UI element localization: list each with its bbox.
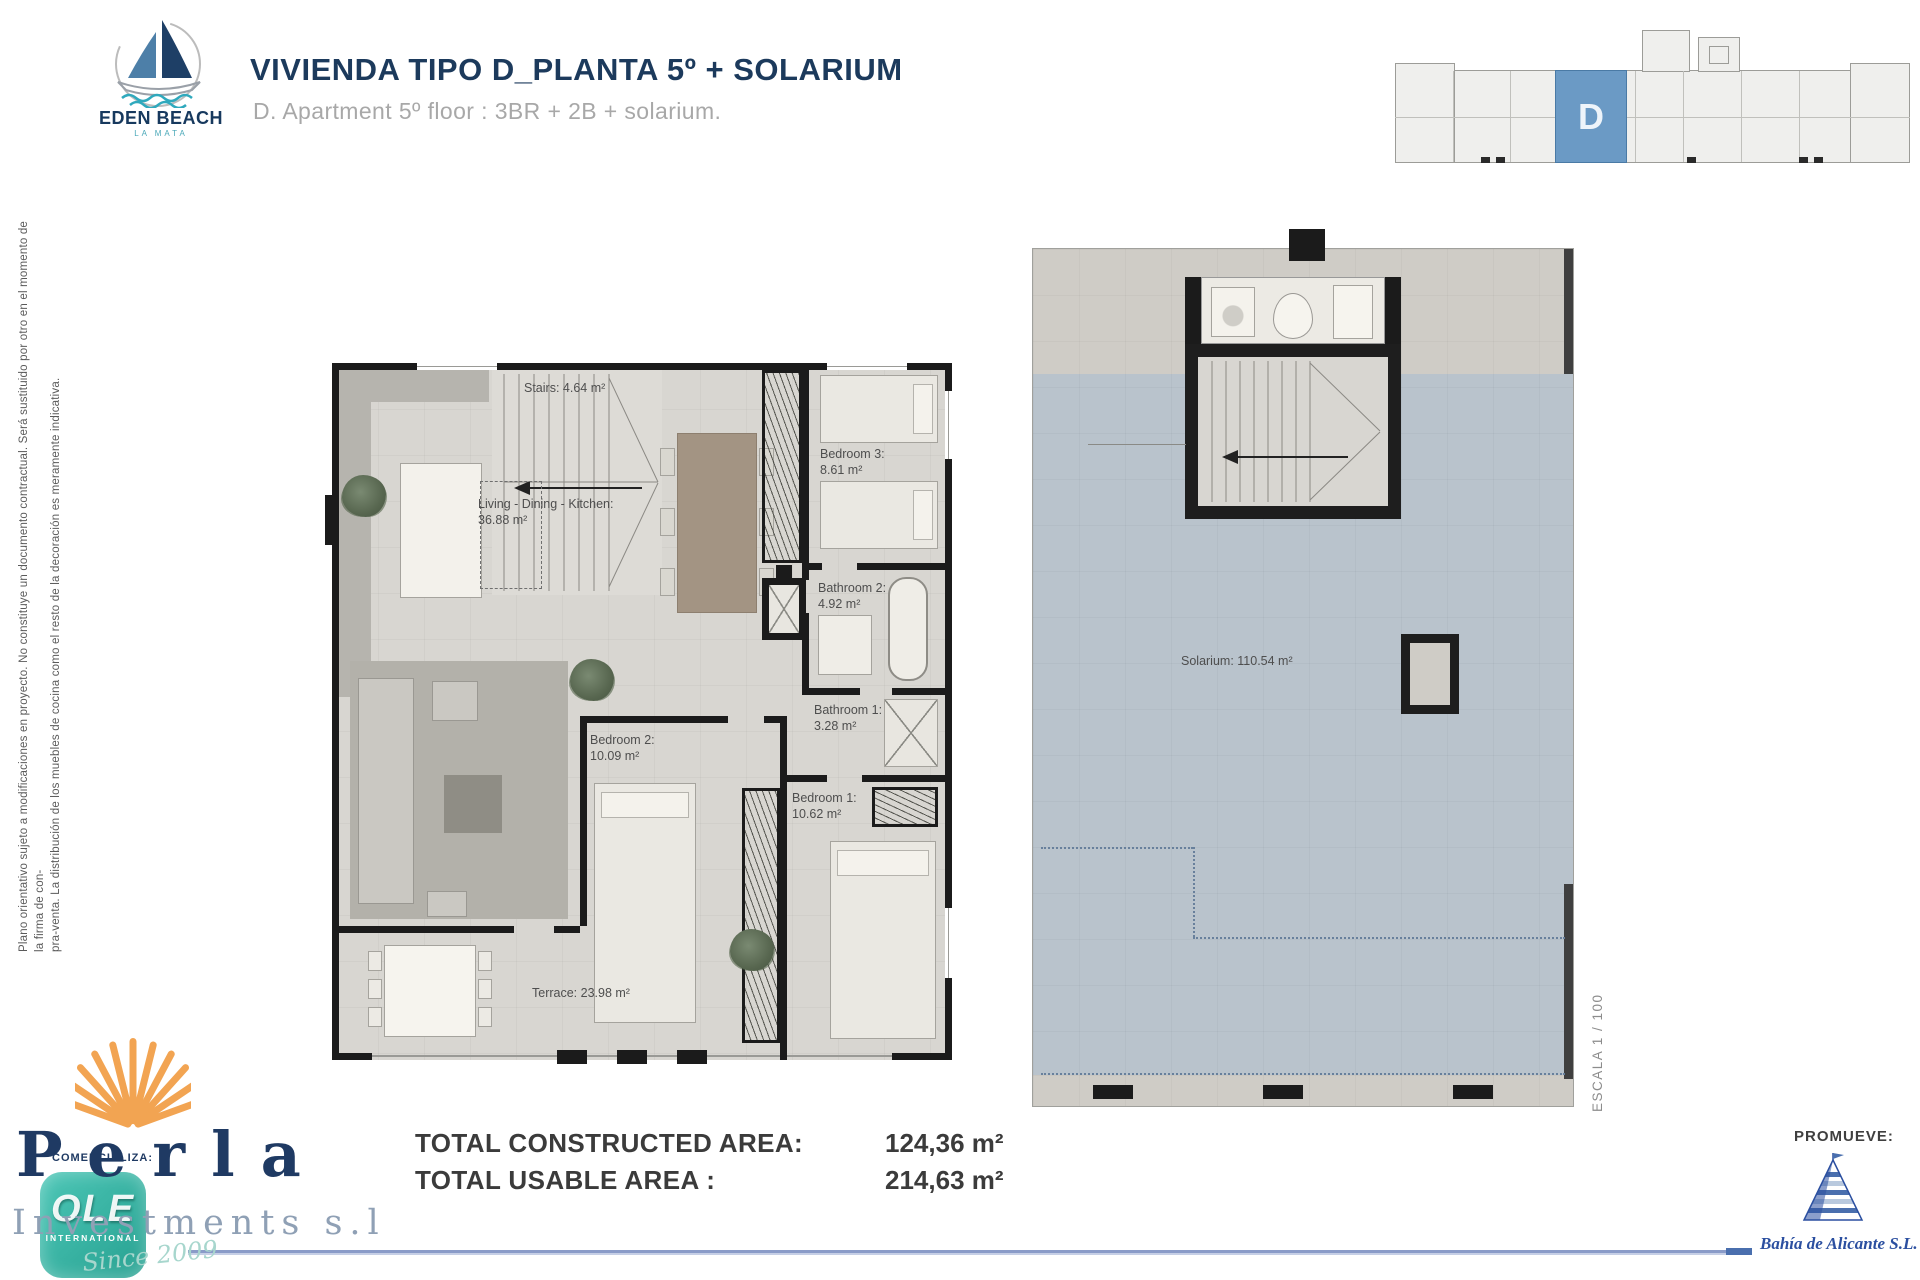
title-post: _PLANTA 5º + SOLARIUM	[515, 52, 903, 87]
side-table	[427, 891, 467, 917]
solarium-stairwell	[1185, 344, 1401, 519]
setback-dotted-line	[1041, 847, 1193, 849]
terrace-chair	[478, 951, 492, 971]
bedroom3-label: Bedroom 3: 8.61 m²	[820, 447, 885, 478]
bedroom1-label: Bedroom 1: 10.62 m²	[792, 791, 857, 822]
plant-icon	[570, 659, 614, 701]
wall-bathrooms-divider	[802, 688, 860, 695]
key-plan-right-wing	[1850, 63, 1910, 163]
bathroom1-label: Bathroom 1: 3.28 m²	[814, 703, 882, 734]
terrace-chair	[368, 979, 382, 999]
legal-disclaimer: Plano orientativo sujeto a modificacione…	[16, 212, 64, 952]
wall-bedrooms-divider	[780, 716, 787, 1060]
stairs-label: Stairs: 4.64 m²	[524, 381, 605, 397]
facade-pier	[1263, 1085, 1303, 1099]
sailboat-icon	[96, 16, 226, 108]
wall-terrace	[339, 926, 514, 933]
bedroom1-bed	[830, 841, 936, 1039]
title-unit-letter: D	[492, 52, 515, 87]
wardrobe-hatch-bedroom2	[742, 788, 780, 1043]
plant-icon	[730, 929, 774, 971]
wall-bathroom1-bottom	[787, 775, 827, 782]
total-constructed-label: TOTAL CONSTRUCTED AREA:	[415, 1128, 885, 1159]
bedroom2-label: Bedroom 2: 10.09 m²	[590, 733, 655, 764]
armchair	[432, 681, 478, 721]
plan-sheet: { "header": { "brand": { "name": "EDEN B…	[0, 0, 1920, 1280]
bedroom2-label-name: Bedroom 2:	[590, 733, 655, 749]
window-bedroom1-right	[945, 908, 952, 978]
solarium-chimney-box	[1401, 634, 1459, 714]
wall-solarium-right-top	[1564, 249, 1573, 374]
bedroom3-label-name: Bedroom 3:	[820, 447, 885, 463]
wall-bedroom2-top	[580, 716, 728, 723]
wall-left-pillar	[325, 495, 332, 545]
scale-label: ESCALA 1 / 100	[1590, 932, 1605, 1112]
window-bedroom3-right	[945, 391, 952, 459]
window-kitchen	[417, 363, 497, 370]
page-subtitle: D. Apartment 5º floor : 3BR + 2B + solar…	[253, 98, 721, 125]
kitchen-island	[400, 463, 482, 598]
coffee-table	[444, 775, 502, 833]
brand-tagline: LA MATA	[85, 129, 237, 138]
living-label: Living - Dining - Kitchen: 36.88 m²	[478, 497, 613, 528]
wall-bedroom2-left	[580, 716, 587, 926]
facade-pier	[617, 1050, 647, 1064]
wall-bathroom1-bottom	[862, 775, 952, 782]
stair-reference-line	[1088, 444, 1186, 445]
bathtub	[888, 577, 928, 681]
bathroom1-label-area: 3.28 m²	[814, 719, 882, 735]
solarium-top-pillar	[1289, 229, 1325, 261]
key-plan-stair-core	[1642, 30, 1690, 72]
wall-bathrooms-divider	[892, 688, 952, 695]
wardrobe-hatch-bedroom3	[762, 370, 802, 563]
laundry-cabinet	[1333, 285, 1373, 339]
terrace-chair	[478, 1007, 492, 1027]
dining-chair	[660, 568, 675, 596]
disclaimer-line2: pra-venta. La distribución de los mueble…	[48, 212, 64, 952]
terrace-chair	[478, 979, 492, 999]
bedroom3-label-area: 8.61 m²	[820, 463, 885, 479]
total-constructed-value: 124,36 m²	[885, 1128, 1004, 1159]
plant-icon	[342, 475, 386, 517]
wall-bedroom3-left	[802, 370, 809, 570]
stairwell-drawing	[1198, 357, 1388, 506]
dining-table	[677, 433, 757, 613]
page-title: VIVIENDA TIPO D_PLANTA 5º + SOLARIUM	[250, 52, 903, 88]
key-plan-unit-label: D	[1578, 96, 1604, 138]
building-key-plan: D	[1395, 25, 1910, 175]
terrace-table	[384, 945, 476, 1037]
living-label-area: 36.88 m²	[478, 513, 613, 529]
apartment-floor-plan: Stairs: 4.64 m² Living - Dining - Kitche…	[332, 363, 952, 1060]
total-usable-value: 214,63 m²	[885, 1165, 1004, 1196]
window-bedroom3-top	[827, 363, 907, 370]
bedroom2-label-area: 10.09 m²	[590, 749, 655, 765]
single-bed	[820, 481, 938, 549]
wall-left	[332, 363, 339, 1060]
wall-bedroom3-bottom	[857, 563, 952, 570]
bahia-company-name: Bahía de Alicante S.L.	[1760, 1234, 1918, 1254]
facade-pier	[1453, 1085, 1493, 1099]
key-plan-elevator	[1698, 37, 1740, 72]
single-bed	[820, 375, 938, 443]
living-label-name: Living - Dining - Kitchen:	[478, 497, 613, 513]
toilet	[1273, 293, 1313, 339]
bedroom1-label-name: Bedroom 1:	[792, 791, 857, 807]
key-plan-unit-d-highlight: D	[1555, 70, 1627, 163]
wc-box-pillar	[776, 565, 792, 579]
solarium-floor-plan: Solarium: 110.54 m²	[1032, 248, 1574, 1107]
facade-pier	[557, 1050, 587, 1064]
title-pre: VIVIENDA TIPO	[250, 52, 492, 87]
wall-bottom-left	[332, 1053, 372, 1060]
setback-dotted-line	[1041, 1073, 1565, 1075]
promueve-caption: PROMUEVE:	[1794, 1128, 1894, 1145]
bathroom2-label-name: Bathroom 2:	[818, 581, 886, 597]
terrace-chair	[368, 1007, 382, 1027]
washing-machine	[1211, 287, 1255, 337]
area-totals: TOTAL CONSTRUCTED AREA: 124,36 m² TOTAL …	[415, 1128, 1035, 1196]
dining-chair	[660, 508, 675, 536]
wall-bottom-right	[892, 1053, 952, 1060]
bedroom1-label-area: 10.62 m²	[792, 807, 857, 823]
total-usable-label: TOTAL USABLE AREA :	[415, 1165, 885, 1196]
bathroom2-label: Bathroom 2: 4.92 m²	[818, 581, 886, 612]
perla-brand: Perla	[16, 1118, 327, 1191]
key-plan-left-wing	[1395, 63, 1455, 163]
dining-chair	[660, 448, 675, 476]
footer-divider-line-light	[188, 1253, 1752, 1255]
bathroom2-vanity	[818, 615, 872, 675]
kitchen-counter-left	[339, 402, 371, 697]
solarium-label: Solarium: 110.54 m²	[1181, 654, 1293, 670]
bathroom2-label-area: 4.92 m²	[818, 597, 886, 613]
terrace-chair	[368, 951, 382, 971]
brand-name: EDEN BEACH	[85, 108, 237, 129]
bahia-pyramid-icon	[1800, 1152, 1866, 1226]
footer-line-endcap	[1726, 1248, 1752, 1255]
setback-dotted-line	[1193, 937, 1565, 939]
wall-bedroom3-bottom	[802, 563, 822, 570]
sofa	[358, 678, 414, 904]
wall-bedroom2-top	[764, 716, 780, 723]
disclaimer-line1: Plano orientativo sujeto a modificacione…	[16, 212, 48, 952]
terrace-label: Terrace: 23.98 m²	[532, 986, 630, 1002]
wc-shower-box	[762, 578, 806, 640]
wall-terrace	[554, 926, 580, 933]
wardrobe-hatch-bedroom1	[872, 787, 938, 827]
facade-pier	[677, 1050, 707, 1064]
wall-solarium-right-bottom	[1564, 884, 1573, 1079]
bathroom1-label-name: Bathroom 1:	[814, 703, 882, 719]
facade-pier	[1093, 1085, 1133, 1099]
setback-dotted-line	[1193, 847, 1195, 937]
eden-beach-logo: EDEN BEACH LA MATA	[85, 16, 237, 146]
kitchen-counter-top	[339, 370, 489, 402]
shower-bathroom1	[884, 699, 938, 767]
